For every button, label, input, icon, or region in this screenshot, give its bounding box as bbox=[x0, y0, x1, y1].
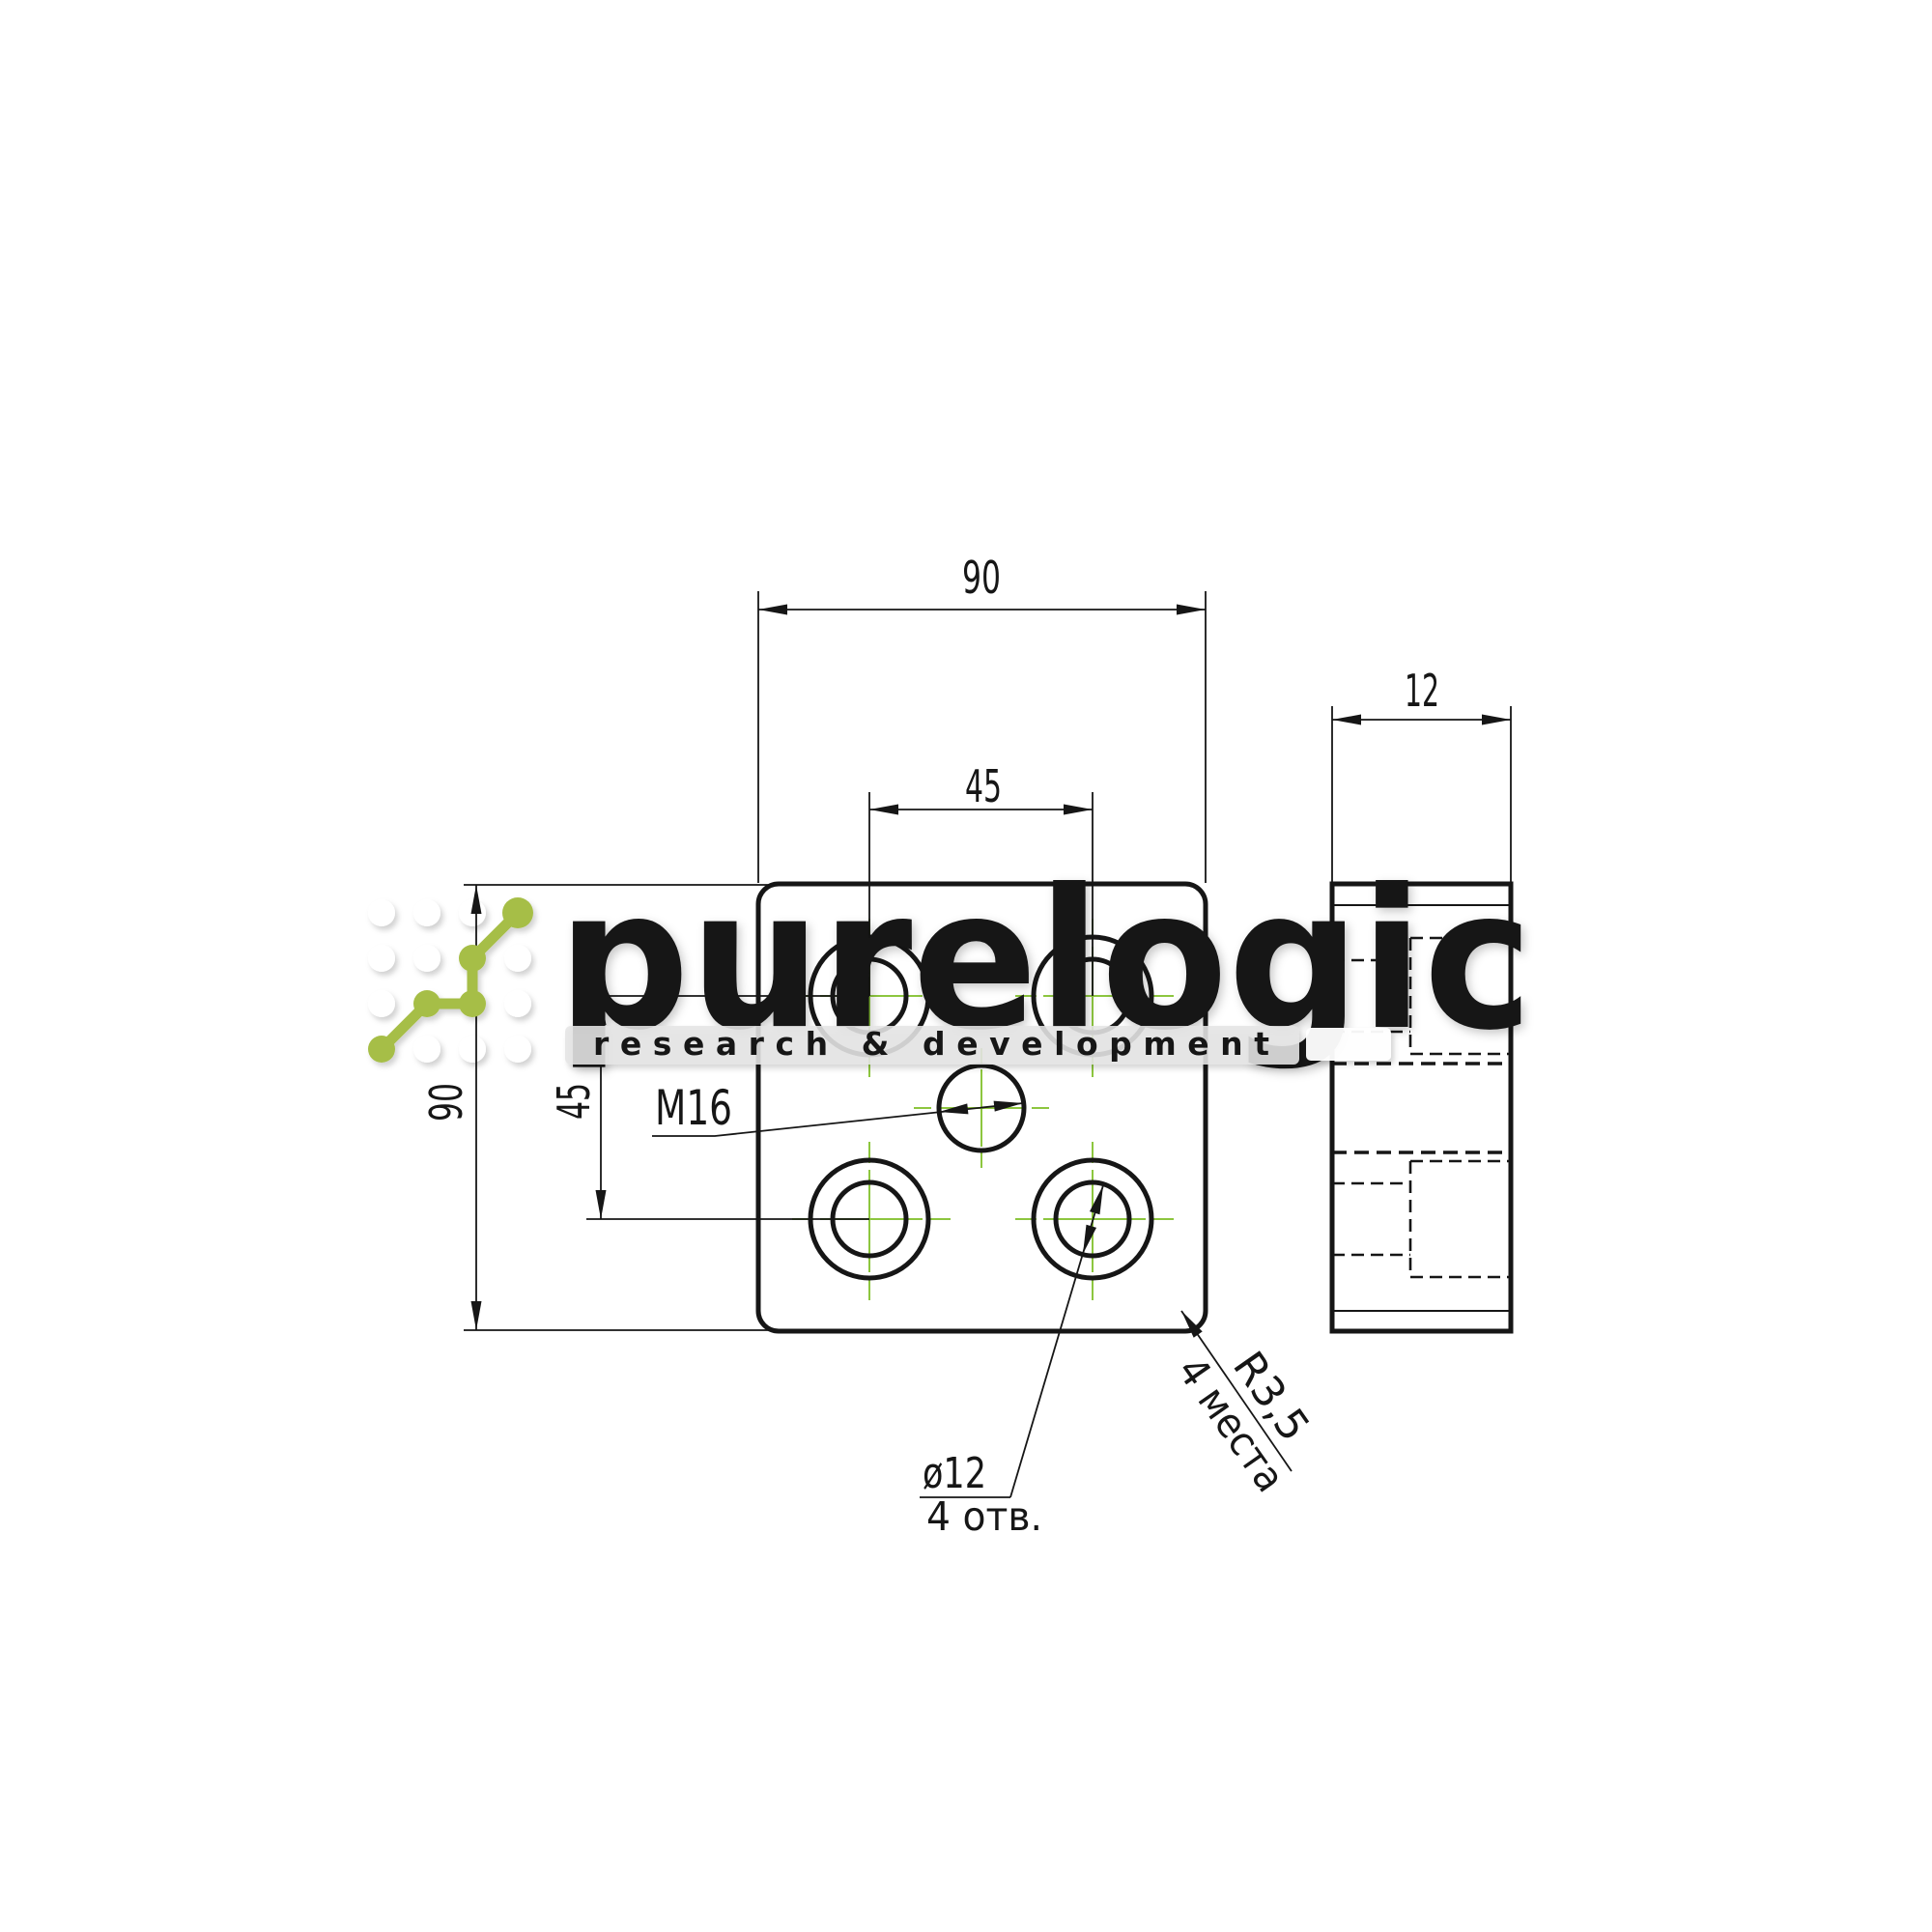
watermark-band-endcap bbox=[1306, 1028, 1391, 1061]
label-hole-diameter: ø12 bbox=[923, 1449, 986, 1498]
dim-plate-width: 90 bbox=[962, 552, 1001, 604]
technical-drawing-canvas: 90 45 12 90 45 M16 ø12 4 отв. R3,5 4 мес… bbox=[0, 0, 1932, 1932]
watermark-tagline: research & development bbox=[593, 1025, 1269, 1063]
dim-plate-height: 90 bbox=[420, 1083, 472, 1122]
dim-thickness: 12 bbox=[1405, 665, 1439, 717]
label-hole-count: 4 отв. bbox=[926, 1493, 1042, 1540]
dim-hole-spacing-horizontal: 45 bbox=[965, 760, 1002, 812]
dim-hole-spacing-vertical: 45 bbox=[548, 1083, 600, 1120]
label-thread: M16 bbox=[655, 1080, 732, 1136]
